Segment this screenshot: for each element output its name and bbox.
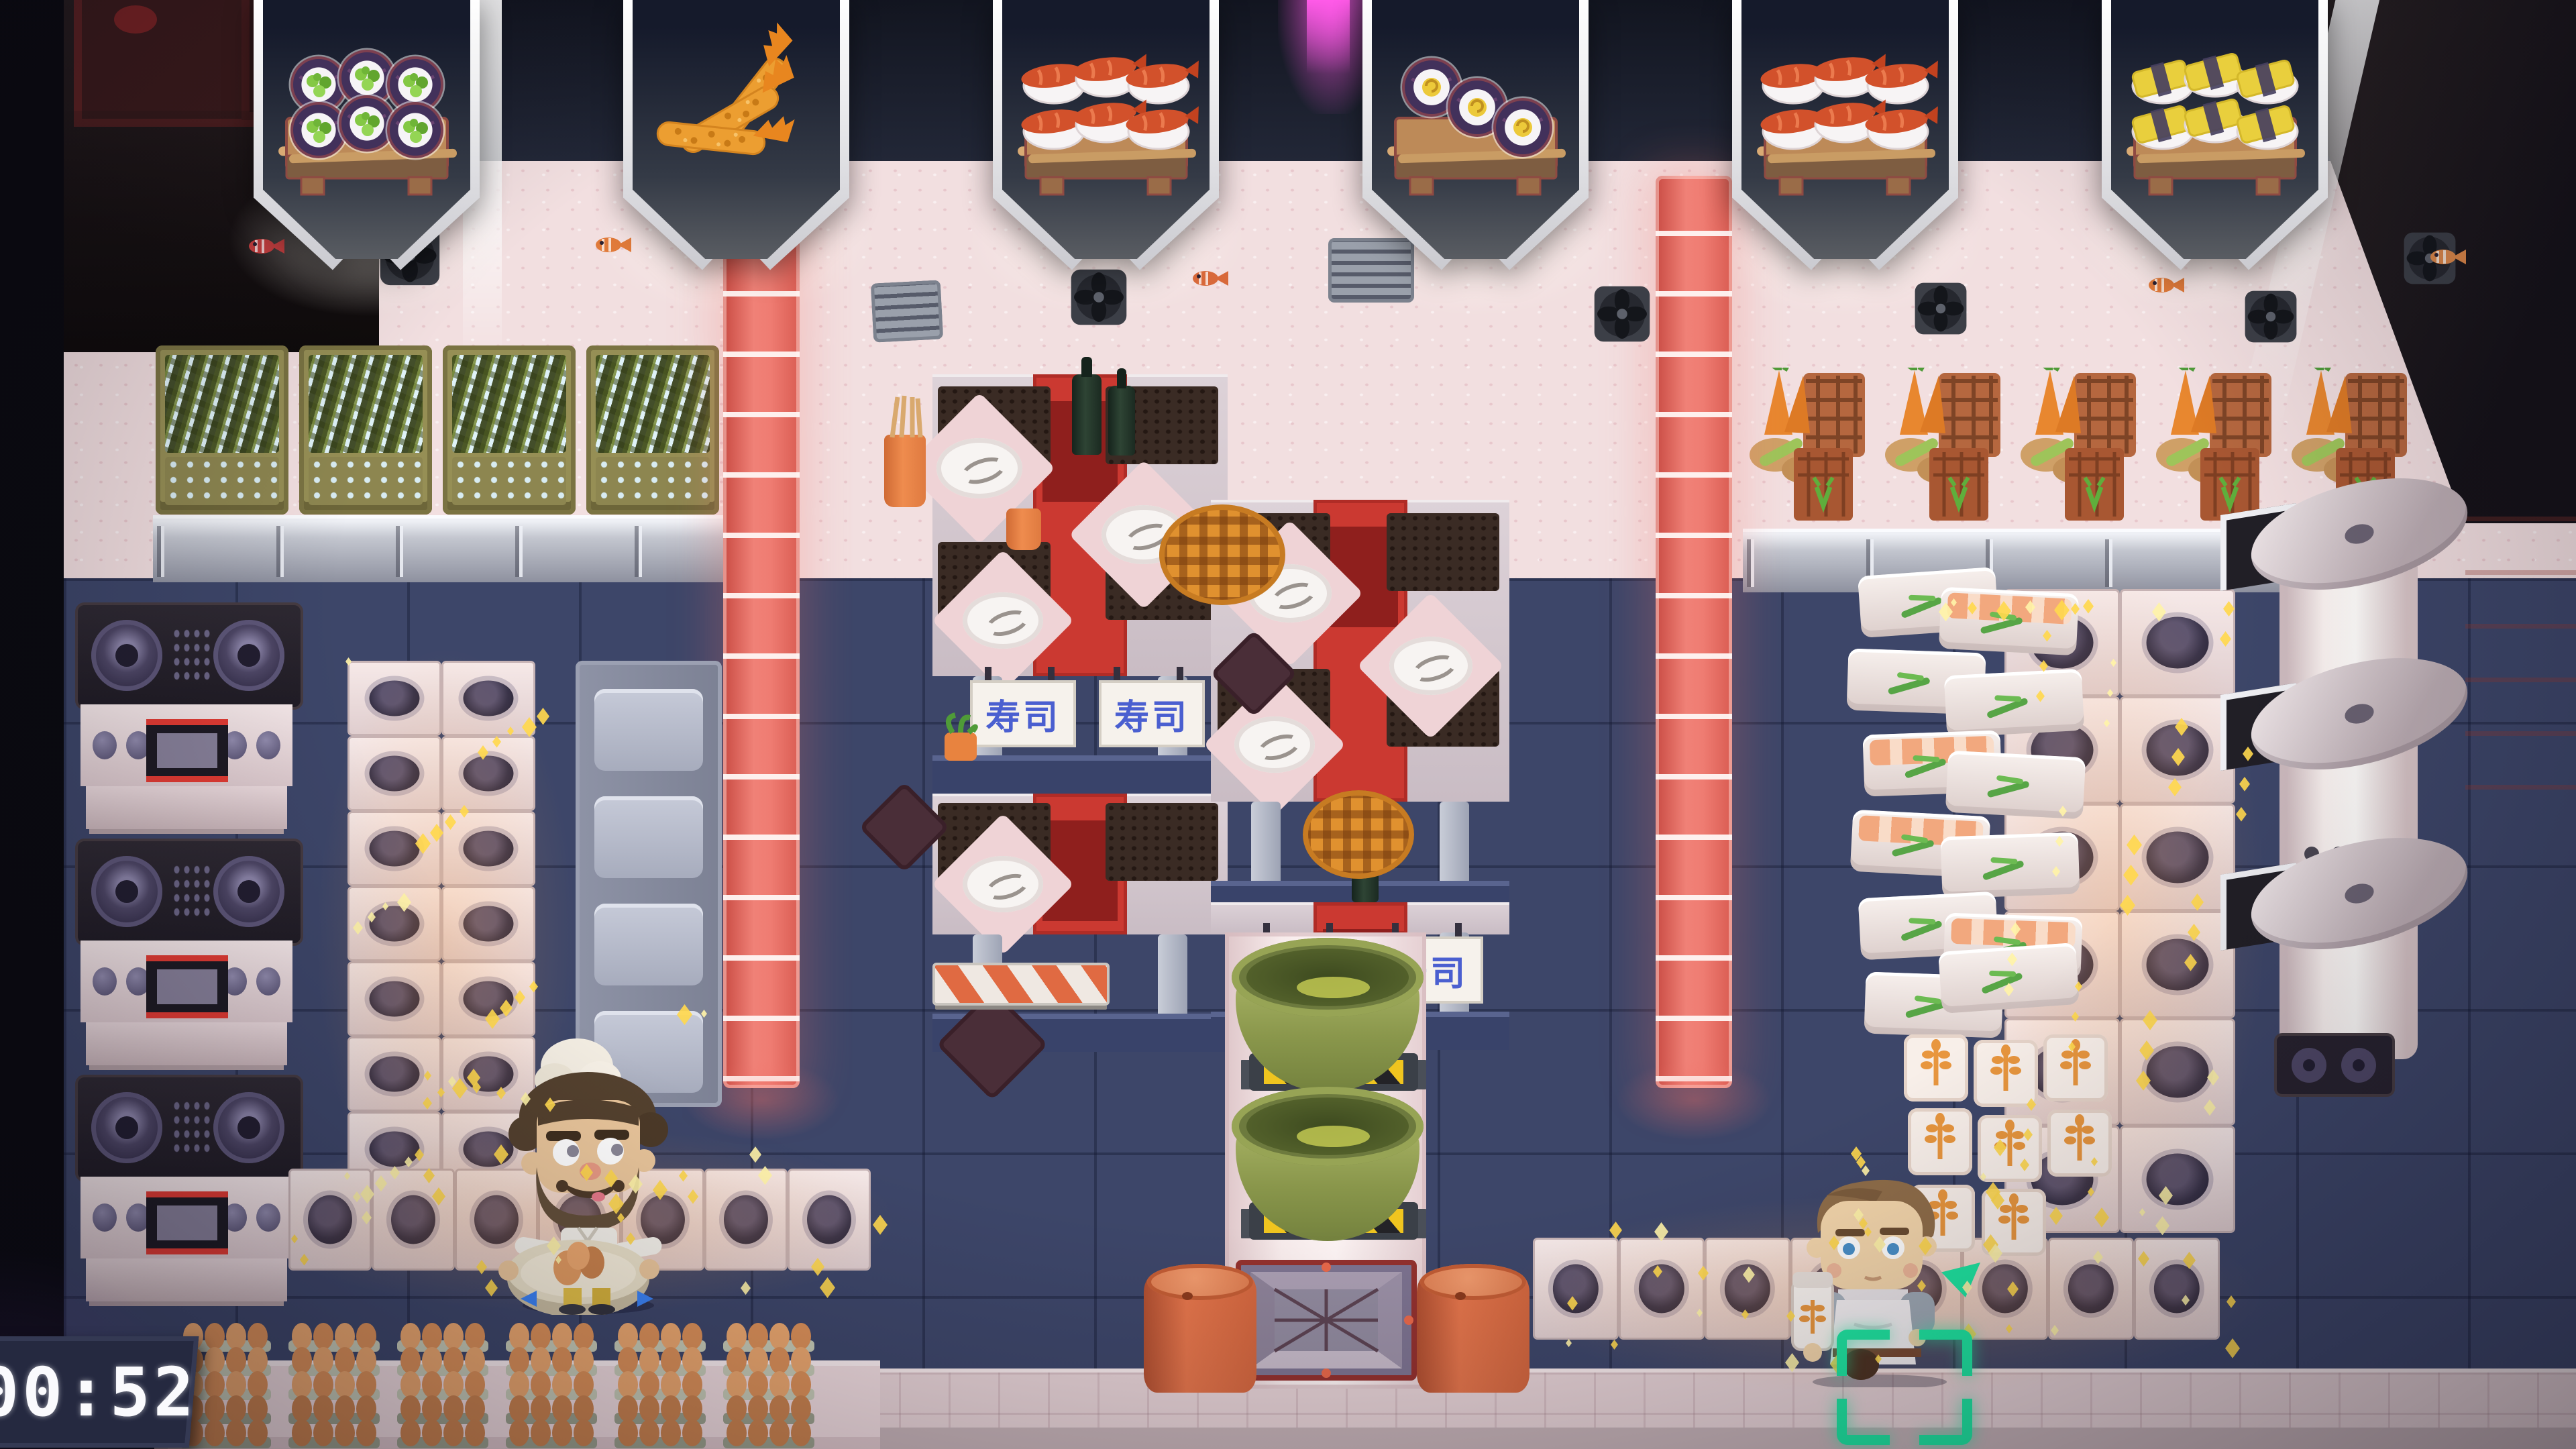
fire-sparkle [2072, 1012, 2079, 1022]
fire-sparkle [300, 1254, 309, 1266]
fire-sparkle [2188, 924, 2200, 941]
fire-sparkle [677, 1004, 692, 1025]
fire-sparkle [555, 1256, 561, 1264]
fire-sparkle [2239, 777, 2250, 792]
fire-sparkle [2055, 836, 2063, 847]
fire-sparkle [2183, 1252, 2196, 1269]
order-ticket [993, 0, 1219, 278]
fire-sparkle [2226, 1295, 2236, 1308]
fire-sparkle [1994, 1139, 2006, 1157]
fire-sparkle [2184, 954, 2197, 971]
fire-sparkle [2023, 1128, 2033, 1141]
fire-sparkle [397, 893, 411, 912]
order-ticket [623, 0, 849, 278]
fire-sparkle [1567, 1296, 1578, 1311]
fire-sparkle [749, 1146, 761, 1163]
shrimp-tempura-icon [636, 17, 837, 212]
bracket-corner [1919, 1399, 1972, 1445]
selection-pointer [1941, 1263, 1980, 1297]
fire-sparkle [437, 1087, 445, 1097]
fire-sparkle [353, 921, 363, 934]
fire-sparkle [2010, 922, 2021, 936]
fire-sparkle [500, 1000, 513, 1017]
fire-sparkle [2043, 630, 2051, 642]
fire-sparkle [522, 717, 537, 737]
fire-sparkle [1874, 1236, 1886, 1252]
fire-sparkle [492, 736, 501, 748]
fire-sparkle [537, 708, 549, 725]
fire-sparkle [1698, 1266, 1709, 1281]
fire-sparkle [460, 805, 469, 818]
fire-sparkle [2204, 1099, 2216, 1116]
fire-sparkle [390, 1166, 400, 1179]
fire-sparkle [521, 1092, 531, 1106]
fire-sparkle [353, 1191, 361, 1202]
order-ticket [1362, 0, 1589, 278]
fire-sparkle [2091, 1157, 2098, 1167]
fire-sparkle [608, 1193, 624, 1214]
fire-sparkle [2051, 1325, 2059, 1336]
fire-sparkle [2207, 1069, 2219, 1085]
fire-sparkle [2020, 1159, 2029, 1171]
order-queue [0, 0, 2576, 288]
fire-sparkle [1980, 1173, 1986, 1181]
fire-sparkle [2139, 1040, 2154, 1061]
fire-sparkle [415, 1148, 424, 1161]
fire-sparkle [2025, 600, 2035, 614]
fire-sparkle [811, 1258, 824, 1276]
fire-sparkle [368, 912, 376, 922]
fire-sparkle [741, 1281, 751, 1295]
fire-sparkle [405, 1157, 413, 1167]
fire-sparkle [430, 824, 443, 842]
fire-sparkle [2094, 1207, 2109, 1228]
fire-sparkle [2143, 1010, 2157, 1030]
fire-sparkle [360, 1185, 374, 1203]
fire-sparkle [2039, 660, 2048, 672]
fire-sparkle [2036, 690, 2045, 702]
order-ticket [2102, 0, 2328, 278]
fire-sparkle [2225, 1338, 2240, 1358]
fire-sparkle [2175, 718, 2188, 736]
fire-sparkle [2071, 603, 2080, 615]
fire-sparkle [653, 1180, 667, 1200]
fire-sparkle [345, 657, 352, 665]
fire-sparkle [1864, 1227, 1872, 1237]
cucumber-maki-roll-icon [266, 17, 468, 212]
match-timer: 00:52 [0, 1336, 199, 1448]
fire-sparkle [1829, 1236, 1839, 1250]
fire-sparkle [1968, 602, 1977, 614]
fire-sparkle [2171, 748, 2185, 766]
bracket-corner [1919, 1330, 1972, 1376]
fire-sparkle [1996, 601, 2011, 621]
fire-sparkle [1917, 1280, 1926, 1292]
fire-sparkle [1654, 1222, 1668, 1241]
fire-sparkle [604, 1169, 618, 1187]
fire-sparkle [1939, 602, 1953, 621]
fire-sparkle [2007, 953, 2017, 966]
fire-sparkle [2093, 1250, 2103, 1264]
fire-sparkle [2138, 1251, 2149, 1267]
fire-sparkle [485, 1009, 500, 1029]
fire-sparkle [362, 1211, 372, 1224]
fire-sparkle [2123, 865, 2139, 885]
fire-sparkle [515, 990, 525, 1005]
fire-sparkle [2088, 1187, 2094, 1197]
fire-sparkle [1611, 1340, 1618, 1350]
fire-sparkle [382, 902, 388, 910]
tamago-maki-roll-icon [1375, 17, 1576, 212]
fire-sparkle [2136, 1071, 2151, 1091]
fire-sparkle [476, 1260, 487, 1275]
fire-sparkle [629, 1175, 643, 1193]
fire-sparkle [291, 1234, 298, 1244]
fire-sparkle [1609, 1222, 1622, 1239]
fire-sparkle [2083, 599, 2094, 614]
fire-sparkle [820, 1277, 835, 1298]
fire-sparkle [2007, 1281, 2019, 1297]
fire-sparkle [494, 1144, 508, 1165]
fire-sparkle [2223, 601, 2235, 616]
order-ticket [254, 0, 480, 278]
fire-sparkle [485, 1279, 498, 1297]
fire-sparkle [2006, 1324, 2012, 1334]
fire-sparkle [1951, 598, 1957, 606]
shrimp-nigiri-icon [1006, 17, 1207, 212]
fire-sparkle [2052, 866, 2060, 877]
fire-sparkle [2182, 1295, 2190, 1305]
fire-sparkle [617, 1213, 625, 1223]
fire-sparkle [496, 1087, 506, 1099]
timer-value: 00:52 [0, 1353, 197, 1432]
fire-sparkle [529, 981, 538, 993]
fire-sparkle [445, 814, 456, 830]
fire-sparkle [2236, 807, 2247, 822]
fire-sparkle [423, 1097, 432, 1110]
fire-sparkle [580, 1164, 593, 1181]
fire-sparkle [344, 1172, 350, 1180]
fire-sparkle [423, 1168, 435, 1183]
fire-sparkle [2027, 1098, 2036, 1111]
fire-sparkle [2152, 602, 2166, 621]
fire-sparkle [1697, 1309, 1703, 1317]
fire-sparkle [2191, 894, 2204, 911]
fire-sparkle [2220, 631, 2231, 647]
game-stage: 寿司寿司寿司寿司 [0, 0, 2576, 1449]
fire-sparkle [2243, 747, 2253, 761]
fire-sparkle [2110, 659, 2116, 667]
fire-sparkle [1743, 1267, 1755, 1283]
selection-brackets [1837, 1330, 1972, 1445]
fire-sparkle [1741, 1309, 1749, 1320]
fire-sparkle [2127, 835, 2142, 855]
bracket-corner [1837, 1330, 1890, 1376]
fire-sparkle [1653, 1265, 1662, 1278]
fire-sparkle [545, 1097, 555, 1112]
fire-sparkle [1785, 1353, 1799, 1372]
fire-sparkle [2107, 689, 2113, 697]
fire-sparkle [507, 727, 514, 736]
fire-sparkle [432, 1187, 445, 1205]
fire-sparkle [2104, 719, 2110, 727]
fire-sparkle [547, 1236, 561, 1255]
fire-sparkle [2168, 778, 2182, 796]
tamago-nigiri-icon [2114, 17, 2316, 212]
fire-sparkle [688, 1189, 698, 1204]
order-ticket [1732, 0, 1958, 278]
fire-sparkle [478, 745, 488, 760]
fire-sparkle [2155, 1216, 2169, 1235]
fire-sparkle [424, 1071, 431, 1081]
fire-sparkle [2049, 1207, 2063, 1225]
fire-sparkle [375, 1175, 387, 1191]
fire-sparkle [2120, 895, 2135, 916]
fire-sparkle [415, 833, 431, 854]
shrimp-nigiri-icon [1745, 17, 1946, 212]
fire-sparkle [1786, 1310, 1795, 1322]
fire-sparkle [2004, 983, 2014, 996]
fire-sparkle [758, 1166, 772, 1185]
fire-sparkle [2059, 806, 2067, 816]
fire-sparkle [2139, 1208, 2145, 1216]
fire-sparkle [1566, 1339, 1572, 1347]
fire-sparkle [2054, 600, 2070, 621]
fire-sparkle [2159, 1186, 2173, 1205]
fire-sparkle [2068, 1042, 2076, 1052]
fire-sparkle [1919, 1237, 1932, 1255]
bracket-corner [1837, 1399, 1890, 1445]
fire-sparkle [1862, 1165, 1870, 1176]
fire-sparkle [626, 1232, 635, 1245]
fire-sparkle [701, 1010, 707, 1018]
fire-sparkle [2075, 981, 2082, 991]
fire-sparkle [873, 1215, 888, 1235]
fire-sparkle [679, 1170, 688, 1182]
